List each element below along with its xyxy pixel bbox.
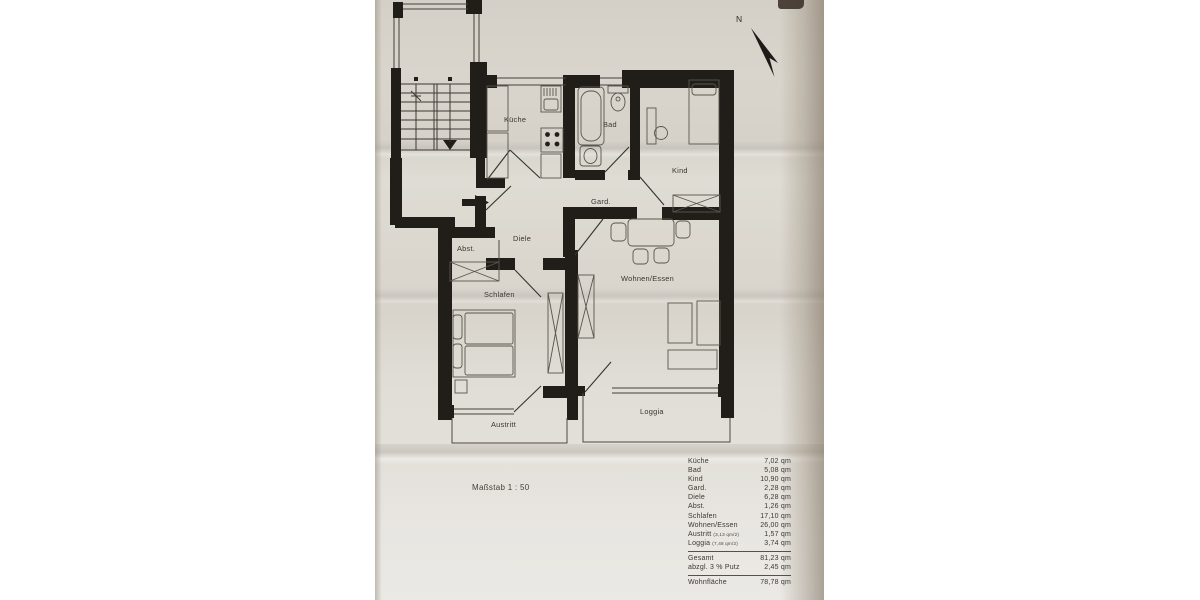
walls [390,0,734,420]
kitchen-sink-bowl [544,99,558,110]
table-row: Austritt(3,13 qm/2) 1,57 qm [688,530,791,539]
table-summary-row: Gesamt 81,23 qm [688,554,791,563]
loggia-outline [583,393,730,442]
table-row: Abst. 1,26 qm [688,502,791,511]
room-label-loggia: Loggia [640,407,664,416]
room-label-wohnen: Wohnen/Essen [621,274,674,283]
room-label-austritt: Austritt [491,420,516,429]
bathtub-inner [581,91,601,141]
room-label-abst: Abst. [457,244,475,253]
table-summary-row: abzgl. 3 % Putz 2,45 qm [688,563,791,572]
north-arrow-icon [751,28,778,77]
kind-chair [655,127,668,140]
bath-sink [580,146,601,166]
photographed-floor-plan-page: { "page": { "north_label": "N", "scale_l… [0,0,1200,600]
room-label-kueche: Küche [504,115,526,124]
room-label-kind: Kind [672,166,688,175]
nightstand [453,344,462,368]
scale-label: Maßstab 1 : 50 [472,483,530,492]
area-table: Küche 7,02 qm Bad 5,08 qm Kind 10,90 qm … [688,457,791,587]
kitchen-cabinet [487,133,508,178]
sofa [668,350,717,369]
room-label-schlafen: Schlafen [484,290,515,299]
balcony-outlines [452,240,730,443]
table-separator [688,551,791,552]
room-label-bad: Bad [603,120,617,129]
table-row: Küche 7,02 qm [688,457,791,466]
table-row: Loggia(7,48 qm/2) 3,74 qm [688,539,791,548]
stove [541,128,563,152]
dining-chair [611,223,626,241]
floor-plan-drawing [0,0,1200,600]
dining-chair [654,248,669,263]
mattress [465,346,513,375]
table-row: Schlafen 17,10 qm [688,512,791,521]
mattress [465,313,513,344]
kind-bed [689,80,719,144]
dresser [455,380,467,393]
table-row: Kind 10,90 qm [688,475,791,484]
staircase [401,84,470,150]
kitchen-cabinet [487,86,508,131]
sofa [697,301,720,345]
toilet-bowl [611,93,625,111]
kind-desk [647,108,656,144]
coffee-table [668,303,692,343]
dining-chair [633,249,648,264]
table-row: Gard. 2,28 qm [688,484,791,493]
table-row: Diele 6,28 qm [688,493,791,502]
table-total-row: Wohnfläche 78,78 qm [688,578,791,587]
dining-table [628,219,674,246]
nightstand [453,315,462,339]
table-row: Bad 5,08 qm [688,466,791,475]
north-label: N [736,14,742,24]
table-separator [688,575,791,576]
table-row: Wohnen/Essen 26,00 qm [688,521,791,530]
room-label-gard: Gard. [591,197,611,206]
kitchen-counter [541,154,561,178]
room-label-diele: Diele [513,234,531,243]
dining-chair [676,221,690,238]
